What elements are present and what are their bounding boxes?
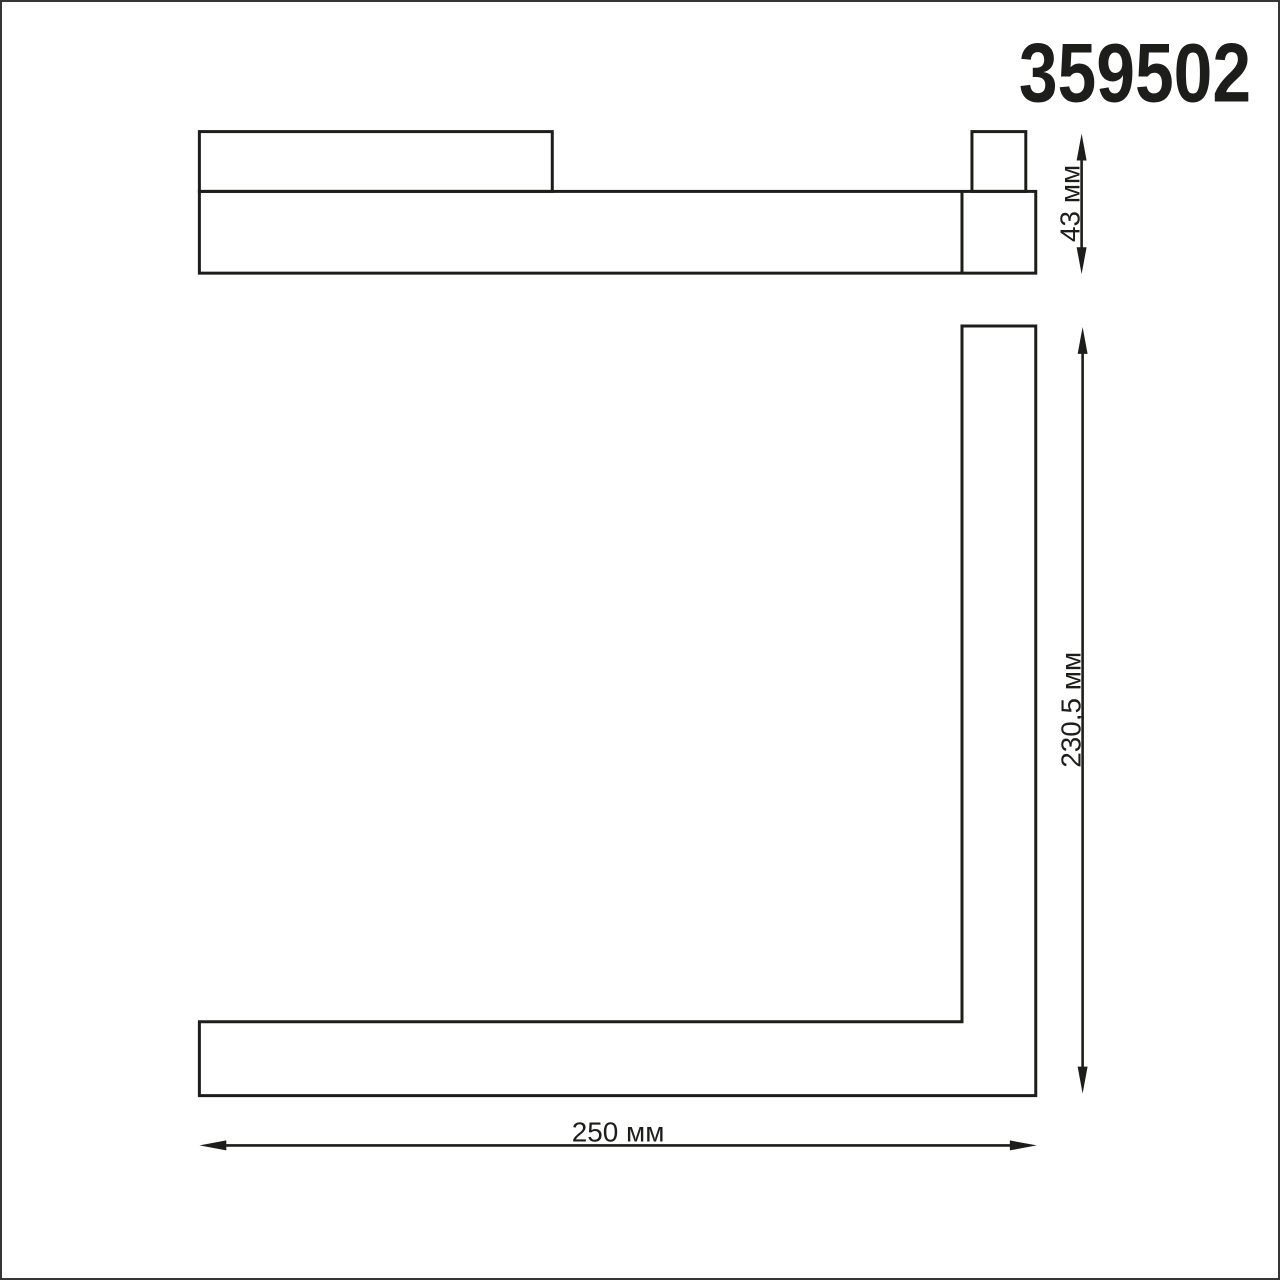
dimension-front-width: 250 мм — [199, 1116, 1036, 1150]
arrowhead-down-icon — [1078, 1067, 1088, 1094]
side-view-adapter-knob — [972, 132, 1026, 192]
product-code: 359502 — [1019, 26, 1251, 120]
side-view — [199, 132, 1035, 274]
drawing-outlines — [199, 132, 1035, 1096]
arrowhead-down-icon — [1077, 247, 1087, 274]
arrowhead-up-icon — [1077, 134, 1087, 161]
side-view-top-plate — [199, 132, 552, 192]
arrowhead-left-icon — [199, 1140, 226, 1150]
arrowhead-right-icon — [1010, 1140, 1037, 1150]
dimension-label-front-height: 230,5 мм — [1056, 652, 1087, 768]
arrowhead-up-icon — [1078, 327, 1088, 354]
drawing-page: 359502 43 мм 230,5 мм — [0, 0, 1280, 1280]
side-view-body — [199, 191, 1035, 273]
front-view-outline — [199, 326, 1035, 1096]
dimension-label-side-height: 43 мм — [1055, 165, 1086, 242]
dimension-side-height: 43 мм — [1055, 134, 1087, 275]
technical-drawing: 359502 43 мм 230,5 мм — [2, 2, 1278, 1278]
dimension-label-front-width: 250 мм — [572, 1116, 665, 1147]
dimension-front-height: 230,5 мм — [1056, 327, 1088, 1094]
